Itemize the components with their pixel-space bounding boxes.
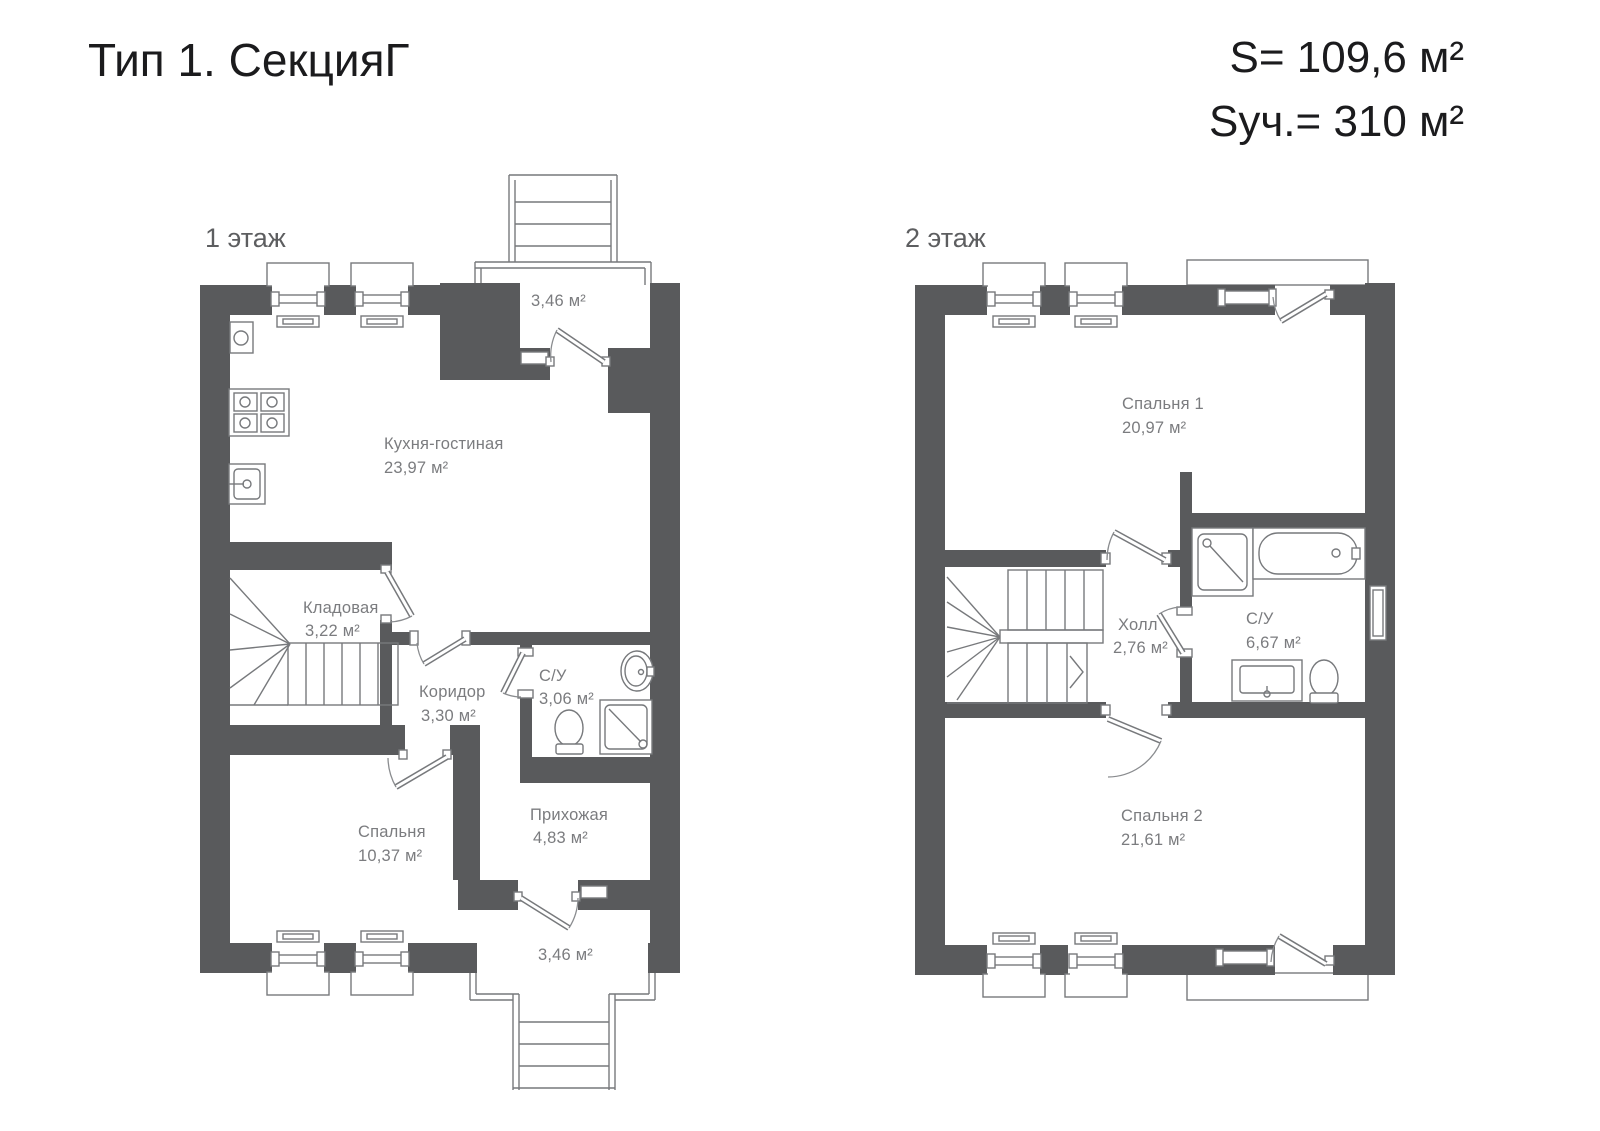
window-slot-icon bbox=[1216, 949, 1274, 966]
page-title: Тип 1. СекцияГ bbox=[88, 34, 409, 86]
window-icon bbox=[983, 263, 1045, 327]
entry-door-icon bbox=[551, 330, 604, 362]
floor2-stairs bbox=[947, 570, 1103, 703]
bathtub-icon bbox=[1253, 528, 1365, 579]
room-area: 10,37 м² bbox=[358, 847, 423, 865]
room-label: Холл bbox=[1118, 616, 1158, 634]
window-icon bbox=[351, 263, 413, 327]
room-area: 2,76 м² bbox=[1113, 639, 1168, 657]
balcony-door-icon bbox=[1271, 936, 1326, 964]
total-area-label: S= 109,6 м² bbox=[1229, 33, 1464, 82]
floor2-room-labels: Спальня 1 20,97 м² Холл 2,76 м² С/У 6,67… bbox=[1113, 395, 1301, 849]
floor2-plan: 2 этаж bbox=[905, 223, 1395, 1000]
room-label: Спальня bbox=[358, 823, 426, 841]
floorplan-canvas: Тип 1. СекцияГ S= 109,6 м² Sуч.= 310 м² … bbox=[0, 0, 1600, 1131]
boiler-icon bbox=[230, 322, 253, 353]
shower-icon bbox=[1192, 528, 1253, 596]
room-label: Спальня 1 bbox=[1122, 395, 1204, 413]
toilet-icon bbox=[1310, 660, 1338, 703]
room-area: 23,97 м² bbox=[384, 459, 449, 477]
room-area: 3,46 м² bbox=[538, 946, 593, 964]
header: Тип 1. СекцияГ S= 109,6 м² Sуч.= 310 м² bbox=[88, 33, 1464, 146]
room-area: 3,30 м² bbox=[421, 707, 476, 725]
plot-area-label: Sуч.= 310 м² bbox=[1209, 97, 1464, 146]
back-porch-door-icon bbox=[521, 898, 578, 928]
room-area: 6,67 м² bbox=[1246, 634, 1301, 652]
room-area: 3,06 м² bbox=[539, 690, 594, 708]
window-icon bbox=[267, 931, 329, 995]
balcony-outline bbox=[1187, 260, 1368, 285]
floor1-plan: 1 этаж bbox=[200, 175, 680, 1090]
window-slot-icon bbox=[1218, 289, 1276, 306]
bedroom-door-icon bbox=[388, 757, 447, 787]
window-icon bbox=[1065, 933, 1127, 997]
balcony-outline bbox=[1187, 973, 1368, 1000]
room-label: Кухня-гостиная bbox=[384, 435, 504, 453]
shower-icon bbox=[600, 700, 652, 754]
window-slot-icon bbox=[521, 352, 548, 364]
floor2-balconies bbox=[1187, 260, 1368, 1000]
room-area: 3,46 м² bbox=[531, 292, 586, 310]
washbasin-icon bbox=[621, 651, 654, 691]
room-area: 21,61 м² bbox=[1121, 831, 1186, 849]
window-icon bbox=[267, 263, 329, 327]
toilet-icon bbox=[555, 710, 583, 754]
room-label: Кладовая bbox=[303, 599, 379, 617]
room-area: 20,97 м² bbox=[1122, 419, 1187, 437]
stairs-direction-arrow-icon bbox=[1070, 656, 1083, 688]
room-label: Прихожая bbox=[530, 806, 608, 824]
window-slot-icon bbox=[581, 886, 607, 898]
window-icon bbox=[351, 931, 413, 995]
room-label: Спальня 2 bbox=[1121, 807, 1203, 825]
kitchen-door-icon bbox=[417, 639, 465, 664]
floor1-entry-steps bbox=[475, 175, 651, 285]
towel-radiator-icon bbox=[1370, 586, 1386, 640]
window-icon bbox=[983, 933, 1045, 997]
kitchen-fixtures bbox=[229, 322, 289, 504]
kitchen-sink-icon bbox=[229, 464, 265, 504]
bedroom2-door-icon bbox=[1108, 719, 1161, 777]
washbasin-icon bbox=[1232, 660, 1302, 701]
bedroom1-door-icon bbox=[1107, 532, 1165, 560]
floor2-label: 2 этаж bbox=[905, 223, 986, 253]
stove-icon bbox=[229, 389, 289, 436]
room-label: С/У bbox=[539, 667, 567, 685]
floor2-bathroom-fixtures bbox=[1192, 528, 1386, 703]
floor1-stairs bbox=[230, 578, 398, 705]
floor1-label: 1 этаж bbox=[205, 223, 286, 253]
room-area: 4,83 м² bbox=[533, 829, 588, 847]
floor1-back-steps bbox=[470, 973, 655, 1090]
room-label: С/У bbox=[1246, 610, 1274, 628]
floor1-walls bbox=[200, 283, 680, 973]
room-area: 3,22 м² bbox=[305, 622, 360, 640]
room-label: Коридор bbox=[419, 683, 486, 701]
window-icon bbox=[1065, 263, 1127, 327]
balcony-door-icon bbox=[1273, 294, 1326, 321]
